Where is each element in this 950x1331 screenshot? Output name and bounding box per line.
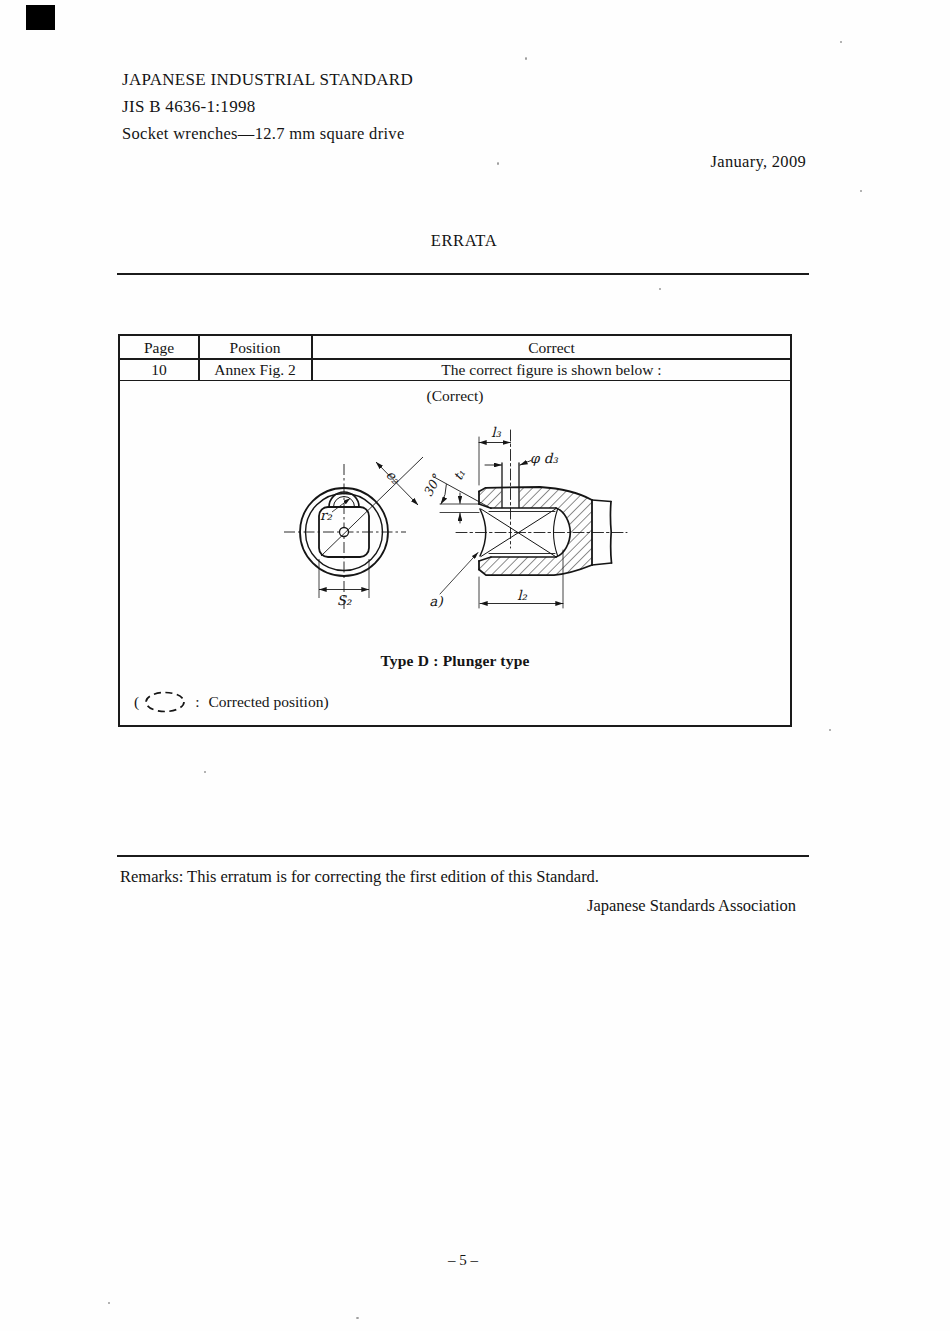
dim-label-t1: t₁ (450, 467, 468, 483)
table-cell-page: 10 (120, 359, 198, 380)
divider-bottom (117, 855, 809, 857)
legend-corrected-position: ( : Corrected position) (134, 689, 329, 715)
document-page: JAPANESE INDUSTRIAL STANDARD JIS B 4636-… (0, 0, 950, 1331)
correct-note: (Correct) (120, 385, 790, 406)
scan-speck (829, 729, 831, 731)
figure-type-d-plunger: l₃ φ d₃ 30° t₁ e₂ r₂ S₂ a) l₂ (272, 417, 682, 627)
scan-speck (840, 41, 842, 43)
dim-label-r2: r₂ (320, 507, 332, 523)
dim-label-e2: e₂ (383, 466, 404, 487)
legend-open-paren: ( (134, 693, 139, 711)
errata-date: January, 2009 (0, 152, 806, 172)
table-cell-position: Annex Fig. 2 (199, 359, 311, 380)
dim-label-s2: S₂ (337, 592, 352, 608)
scan-corner-mark (26, 5, 55, 30)
dashed-ellipse-icon (142, 689, 188, 715)
page-number: – 5 – (0, 1252, 926, 1269)
scan-speck (356, 1317, 359, 1319)
scan-speck (108, 1302, 110, 1304)
scan-speck (497, 162, 499, 165)
legend-separator: : (195, 693, 199, 711)
dim-label-phi-d3: φ d₃ (530, 450, 558, 466)
front-view (284, 457, 423, 609)
scan-speck (860, 190, 862, 192)
dim-label-30deg: 30° (420, 472, 444, 499)
table-cell-correct: The correct figure is shown below : (313, 359, 790, 380)
scan-speck (204, 771, 206, 773)
table-header-page: Page (120, 337, 198, 358)
remarks-text: Remarks: This erratum is for correcting … (120, 867, 599, 887)
legend-text: Corrected position) (208, 693, 328, 711)
dim-label-l2: l₂ (517, 587, 527, 603)
center-pin-hole (340, 528, 349, 537)
errata-table: Page Position Correct 10 Annex Fig. 2 Th… (118, 334, 792, 727)
standard-number: JIS B 4636-1:1998 (122, 97, 256, 117)
scan-speck (525, 57, 527, 60)
errata-title: ERRATA (118, 231, 810, 251)
dim-label-l3: l₃ (491, 424, 501, 440)
figure-caption: Type D : Plunger type (120, 650, 790, 671)
scan-speck (659, 288, 661, 290)
ref-label-a: a) (429, 593, 443, 609)
table-header-correct: Correct (313, 337, 790, 358)
standard-title: Socket wrenches—12.7 mm square drive (122, 124, 405, 144)
table-header-position: Position (199, 337, 311, 358)
association-name: Japanese Standards Association (0, 896, 796, 916)
divider-top (117, 273, 809, 275)
standard-name: JAPANESE INDUSTRIAL STANDARD (122, 70, 413, 90)
